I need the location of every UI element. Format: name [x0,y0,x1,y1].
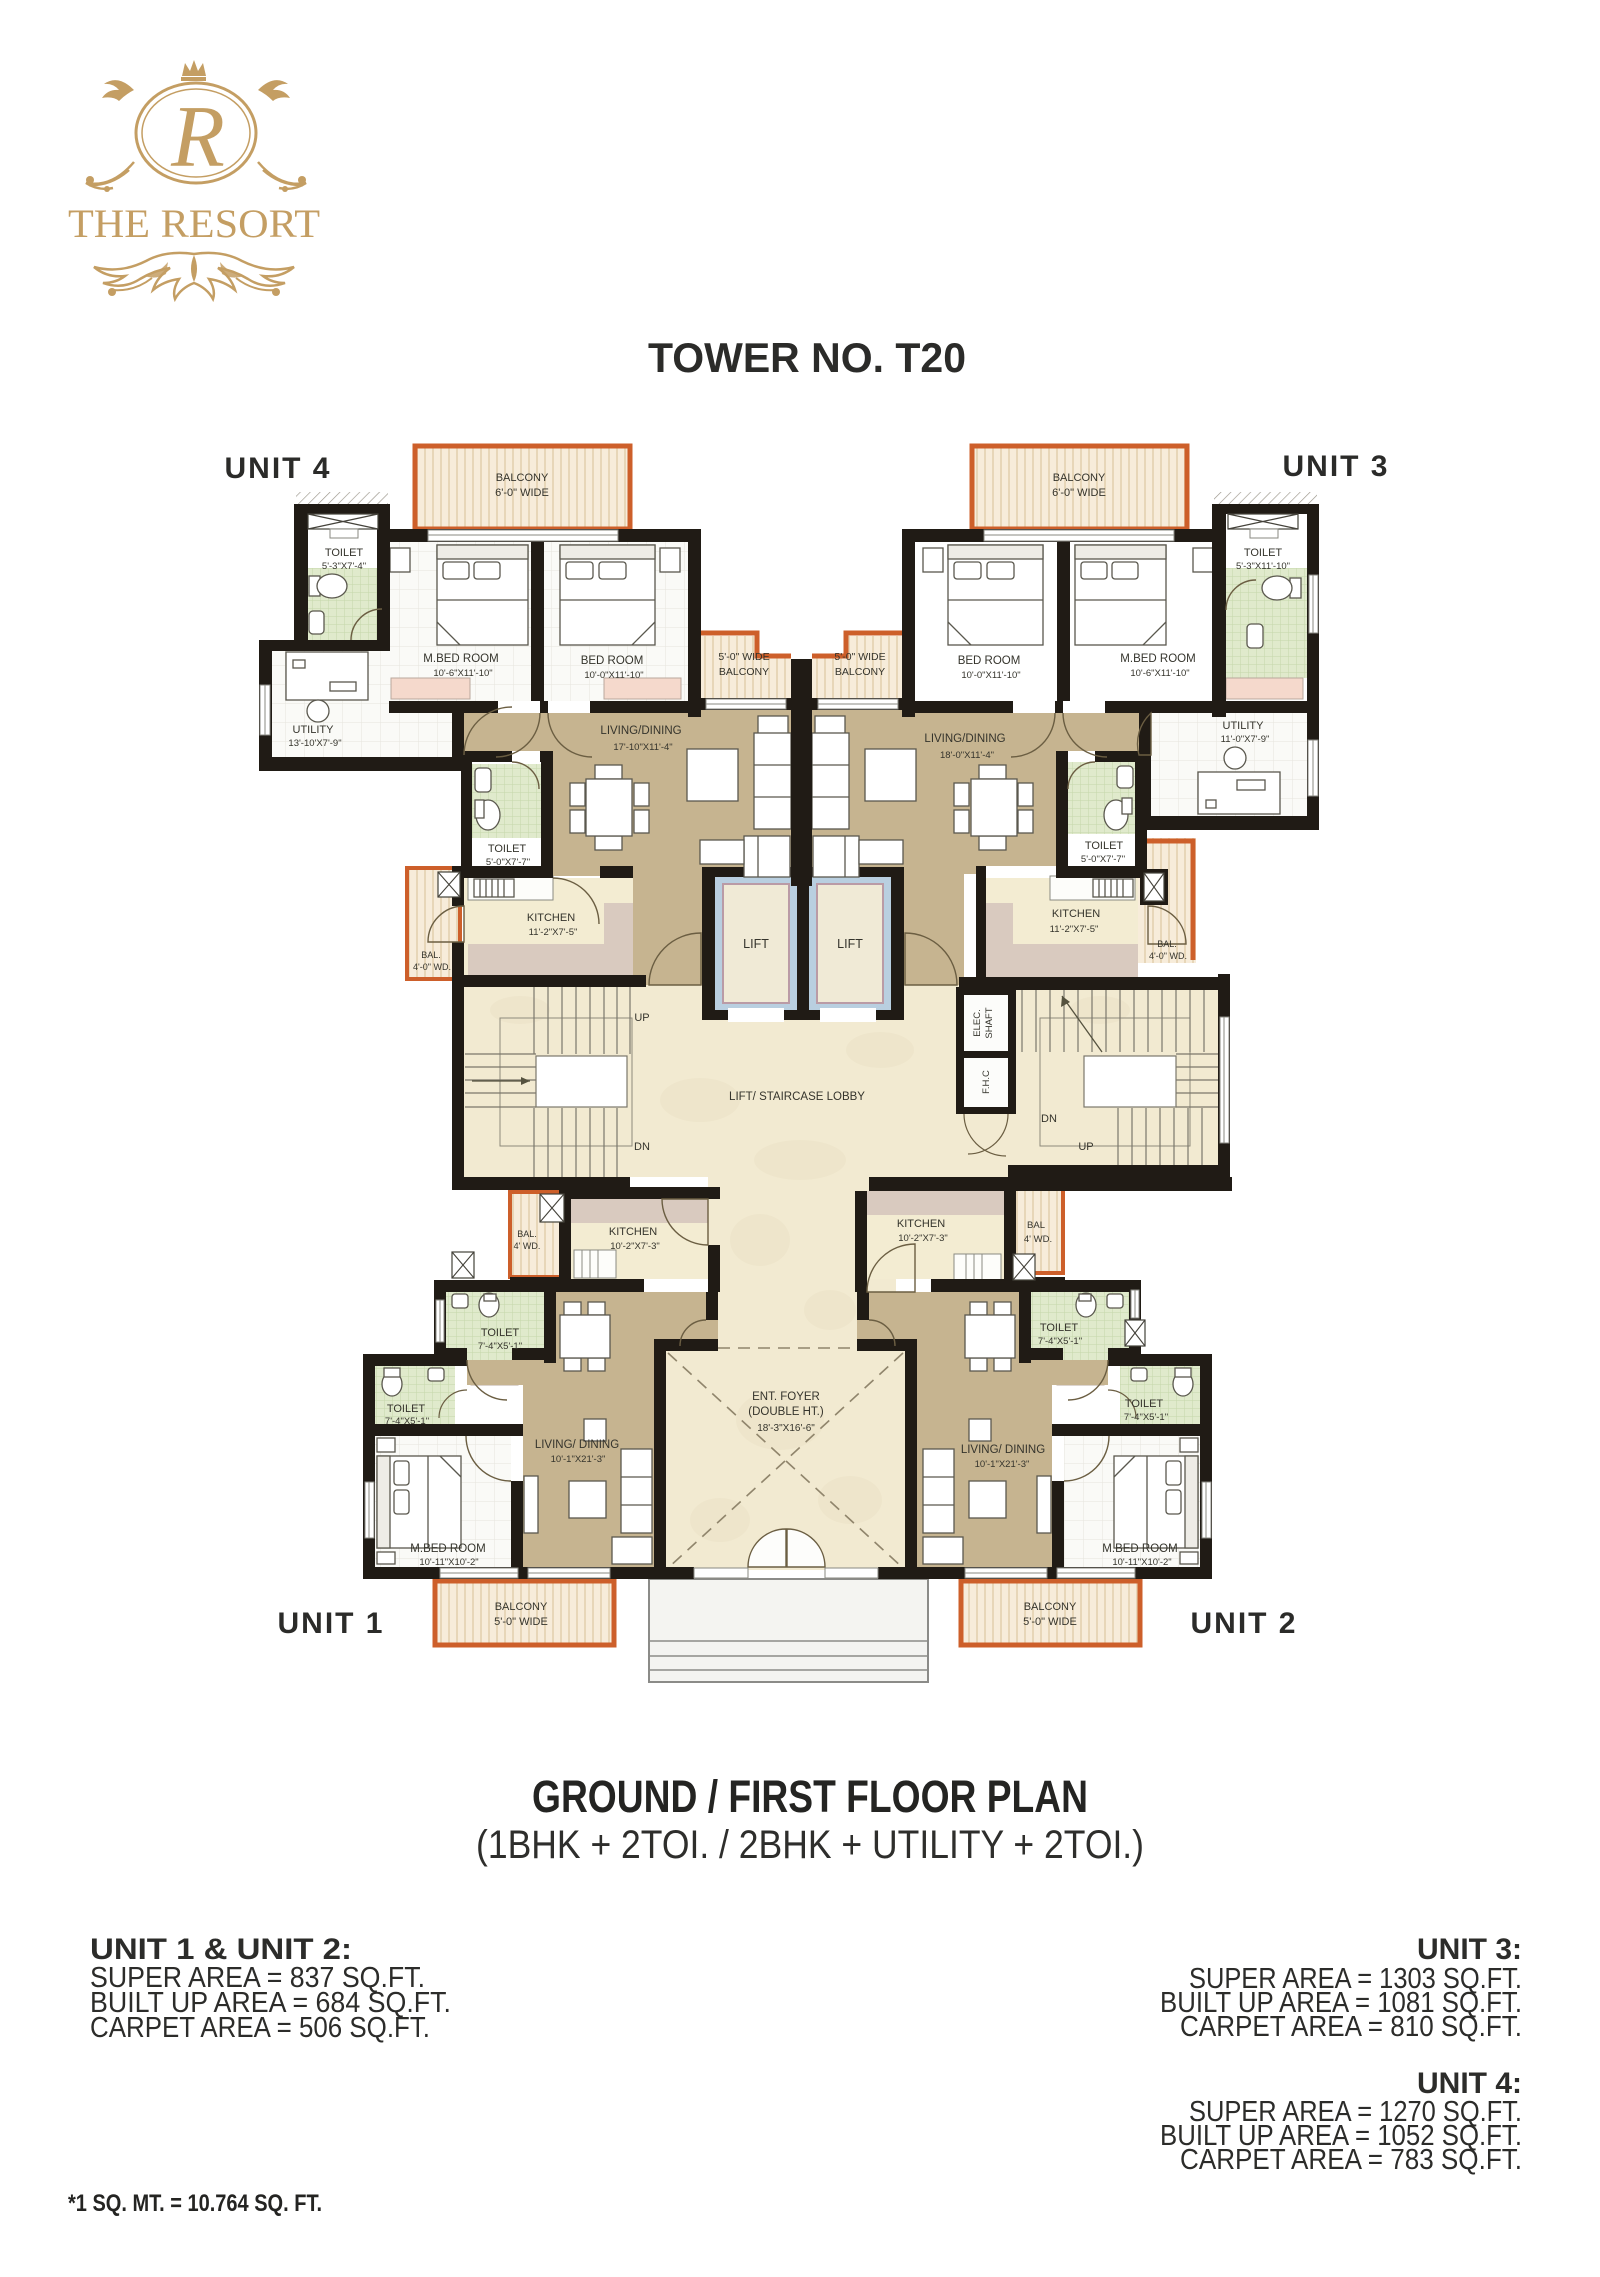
svg-text:BALCONY: BALCONY [495,1601,548,1613]
svg-text:ELEC.: ELEC. [972,1009,983,1036]
svg-text:7'-4"X5'-1": 7'-4"X5'-1" [385,1416,429,1427]
svg-text:TOILET: TOILET [481,1327,520,1339]
svg-text:TOILET: TOILET [1125,1398,1164,1410]
svg-text:THE RESORT: THE RESORT [68,201,320,246]
svg-text:CARPET AREA = 783 SQ.FT.: CARPET AREA = 783 SQ.FT. [1180,2144,1522,2176]
svg-text:F.H.C: F.H.C [981,1070,992,1094]
svg-text:KITCHEN: KITCHEN [609,1226,657,1238]
svg-text:10'-11"X10'-2": 10'-11"X10'-2" [1112,1557,1171,1568]
svg-text:BAL.: BAL. [421,950,441,960]
svg-text:10'-1"X21'-3": 10'-1"X21'-3" [975,1459,1030,1470]
svg-text:LIVING/ DINING: LIVING/ DINING [535,1439,619,1451]
svg-text:(1BHK + 2TOI. / 2BHK + UTILITY: (1BHK + 2TOI. / 2BHK + UTILITY + 2TOI.) [476,1823,1144,1867]
svg-text:BED ROOM: BED ROOM [958,655,1021,667]
svg-text:6'-0" WIDE: 6'-0" WIDE [1052,487,1106,499]
svg-text:TOILET: TOILET [387,1403,426,1415]
svg-text:*1 SQ. MT. = 10.764 SQ. FT.: *1 SQ. MT. = 10.764 SQ. FT. [68,2190,322,2217]
svg-text:BAL.: BAL. [1157,939,1177,949]
svg-text:10'-11"X10'-2": 10'-11"X10'-2" [419,1557,478,1568]
svg-text:KITCHEN: KITCHEN [527,912,575,924]
svg-text:4'-0" WD.: 4'-0" WD. [413,962,451,972]
svg-text:CARPET AREA = 506 SQ.FT.: CARPET AREA = 506 SQ.FT. [90,2012,430,2044]
svg-text:SHAFT: SHAFT [984,1007,995,1038]
svg-text:BALCONY: BALCONY [1053,472,1106,484]
svg-text:7'-4"X5'-1": 7'-4"X5'-1" [478,1341,522,1352]
svg-text:10'-0"X11'-10": 10'-0"X11'-10" [961,670,1020,681]
svg-text:LIFT: LIFT [743,937,769,951]
svg-text:BALCONY: BALCONY [1024,1601,1077,1613]
svg-text:TOILET: TOILET [488,843,527,855]
svg-text:11'-0"X7'-9": 11'-0"X7'-9" [1221,734,1270,745]
svg-text:LIFT: LIFT [837,937,863,951]
svg-text:7'-4"X5'-1": 7'-4"X5'-1" [1038,1336,1082,1347]
svg-text:BAL.: BAL. [517,1229,537,1239]
svg-text:BAL: BAL [1027,1220,1045,1231]
svg-text:UNIT 3: UNIT 3 [1282,450,1389,483]
svg-text:6'-0" WIDE: 6'-0" WIDE [495,487,549,499]
svg-text:17'-10"X11'-4": 17'-10"X11'-4" [613,742,672,753]
svg-text:BALCONY: BALCONY [835,666,885,678]
svg-text:10'-6"X11'-10": 10'-6"X11'-10" [433,668,492,679]
svg-text:5'-0" WIDE: 5'-0" WIDE [1023,1616,1077,1628]
svg-text:CARPET AREA = 810 SQ.FT.: CARPET AREA = 810 SQ.FT. [1180,2011,1522,2043]
svg-text:BALCONY: BALCONY [719,666,769,678]
svg-text:(DOUBLE HT.): (DOUBLE HT.) [748,1406,824,1418]
svg-text:4' WD.: 4' WD. [514,1241,541,1251]
svg-text:UP: UP [634,1012,649,1024]
svg-text:10'-2"X7'-3": 10'-2"X7'-3" [898,1233,947,1244]
svg-text:KITCHEN: KITCHEN [1052,908,1100,920]
svg-text:10'-6"X11'-10": 10'-6"X11'-10" [1130,668,1189,679]
svg-text:4'-0" WD.: 4'-0" WD. [1149,951,1187,961]
svg-text:BALCONY: BALCONY [496,472,549,484]
svg-text:4' WD.: 4' WD. [1024,1234,1052,1245]
svg-text:UTILITY: UTILITY [1223,720,1265,732]
svg-text:TOILET: TOILET [1244,547,1283,559]
svg-text:5'-0" WIDE: 5'-0" WIDE [494,1616,548,1628]
svg-text:10'-0"X11'-10": 10'-0"X11'-10" [584,670,643,681]
svg-text:M.BED ROOM: M.BED ROOM [1102,1543,1177,1555]
svg-text:11'-2"X7'-5": 11'-2"X7'-5" [1050,924,1099,935]
svg-text:LIVING/DINING: LIVING/DINING [924,733,1005,745]
svg-text:M.BED ROOM: M.BED ROOM [1120,653,1195,665]
svg-text:5'-3"X11'-10": 5'-3"X11'-10" [1236,561,1290,572]
svg-text:7'-4"X5'-1": 7'-4"X5'-1" [1124,1412,1168,1423]
svg-text:TOILET: TOILET [1085,840,1124,852]
svg-text:13'-10'X7'-9": 13'-10'X7'-9" [288,738,341,749]
svg-text:LIVING/ DINING: LIVING/ DINING [961,1444,1045,1456]
svg-text:GROUND / FIRST FLOOR PLAN: GROUND / FIRST FLOOR PLAN [532,1771,1088,1822]
svg-text:M.BED ROOM: M.BED ROOM [410,1543,485,1555]
svg-text:5'-0" WIDE: 5'-0" WIDE [718,651,769,663]
svg-text:UTILITY: UTILITY [293,724,335,736]
svg-text:DN: DN [1041,1113,1057,1125]
svg-text:BED ROOM: BED ROOM [581,655,644,667]
svg-text:5'-3"X7'-4": 5'-3"X7'-4" [322,561,366,572]
svg-text:18'-3"X16'-6": 18'-3"X16'-6" [757,1423,815,1434]
svg-text:UP: UP [1078,1141,1093,1153]
svg-text:DN: DN [634,1141,650,1153]
svg-text:TOWER NO. T20: TOWER NO. T20 [648,334,966,381]
svg-text:11'-2"X7'-5": 11'-2"X7'-5" [529,927,578,938]
svg-text:18'-0"X11'-4": 18'-0"X11'-4" [940,750,994,761]
svg-text:10'-1"X21'-3": 10'-1"X21'-3" [551,1454,606,1465]
svg-text:UNIT 1: UNIT 1 [277,1607,384,1640]
svg-text:KITCHEN: KITCHEN [897,1218,945,1230]
svg-text:10'-2"X7'-3": 10'-2"X7'-3" [610,1241,659,1252]
svg-text:UNIT 3:: UNIT 3: [1417,1933,1522,1966]
svg-text:M.BED ROOM: M.BED ROOM [423,653,498,665]
svg-text:R: R [170,89,225,186]
svg-text:5'-0"X7'-7": 5'-0"X7'-7" [1081,854,1125,865]
svg-text:LIVING/DINING: LIVING/DINING [600,725,681,737]
svg-text:5'-0" WIDE: 5'-0" WIDE [834,651,885,663]
svg-text:TOILET: TOILET [1040,1322,1079,1334]
svg-text:TOILET: TOILET [325,547,364,559]
svg-text:UNIT 4: UNIT 4 [224,452,331,485]
svg-text:ENT. FOYER: ENT. FOYER [752,1391,820,1403]
svg-text:UNIT 2: UNIT 2 [1190,1607,1297,1640]
svg-text:LIFT/ STAIRCASE LOBBY: LIFT/ STAIRCASE LOBBY [729,1091,865,1103]
svg-text:5'-0"X7'-7": 5'-0"X7'-7" [486,857,530,868]
